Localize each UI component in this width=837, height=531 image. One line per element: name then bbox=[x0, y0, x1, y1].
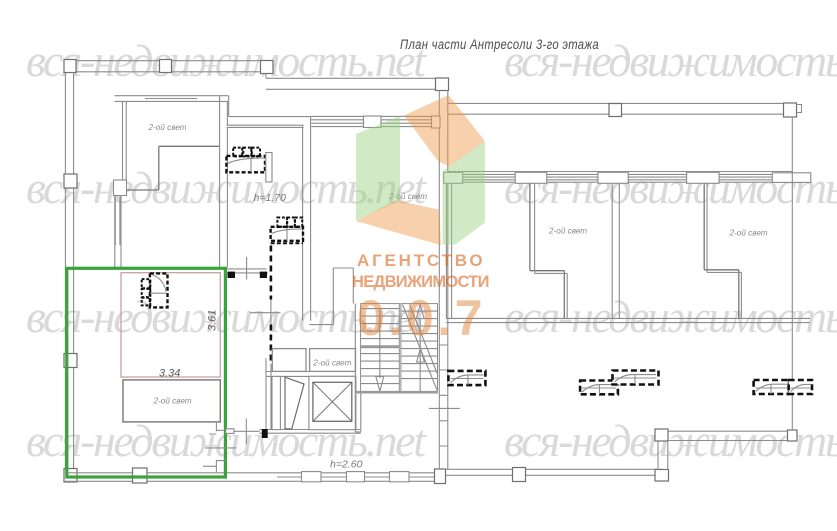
svg-text:2-ой свет: 2-ой свет bbox=[153, 397, 192, 406]
svg-text:2-ой свет: 2-ой свет bbox=[148, 123, 187, 132]
svg-text:АГЕНТСТВО: АГЕНТСТВО bbox=[357, 251, 485, 270]
svg-text:План части Антресоли 3-го этаж: План части Антресоли 3-го этажа bbox=[400, 37, 599, 52]
svg-text:3.61: 3.61 bbox=[207, 310, 219, 331]
svg-text:НЕДВИЖИМОСТИ: НЕДВИЖИМОСТИ bbox=[352, 273, 489, 291]
svg-text:2-ой свет: 2-ой свет bbox=[548, 227, 587, 236]
svg-text:2-ой свет: 2-ой свет bbox=[729, 229, 768, 238]
svg-text:h=1.70: h=1.70 bbox=[254, 192, 287, 204]
svg-text:2-ой свет: 2-ой свет bbox=[312, 359, 351, 368]
svg-text:0.0.7: 0.0.7 bbox=[357, 290, 486, 346]
svg-text:h=2.60: h=2.60 bbox=[330, 459, 363, 471]
svg-text:вся-недвижимость.net: вся-недвижимость.net bbox=[504, 162, 837, 213]
svg-text:3.34: 3.34 bbox=[159, 367, 180, 379]
svg-text:вся-недвижимость.net: вся-недвижимость.net bbox=[504, 291, 837, 342]
